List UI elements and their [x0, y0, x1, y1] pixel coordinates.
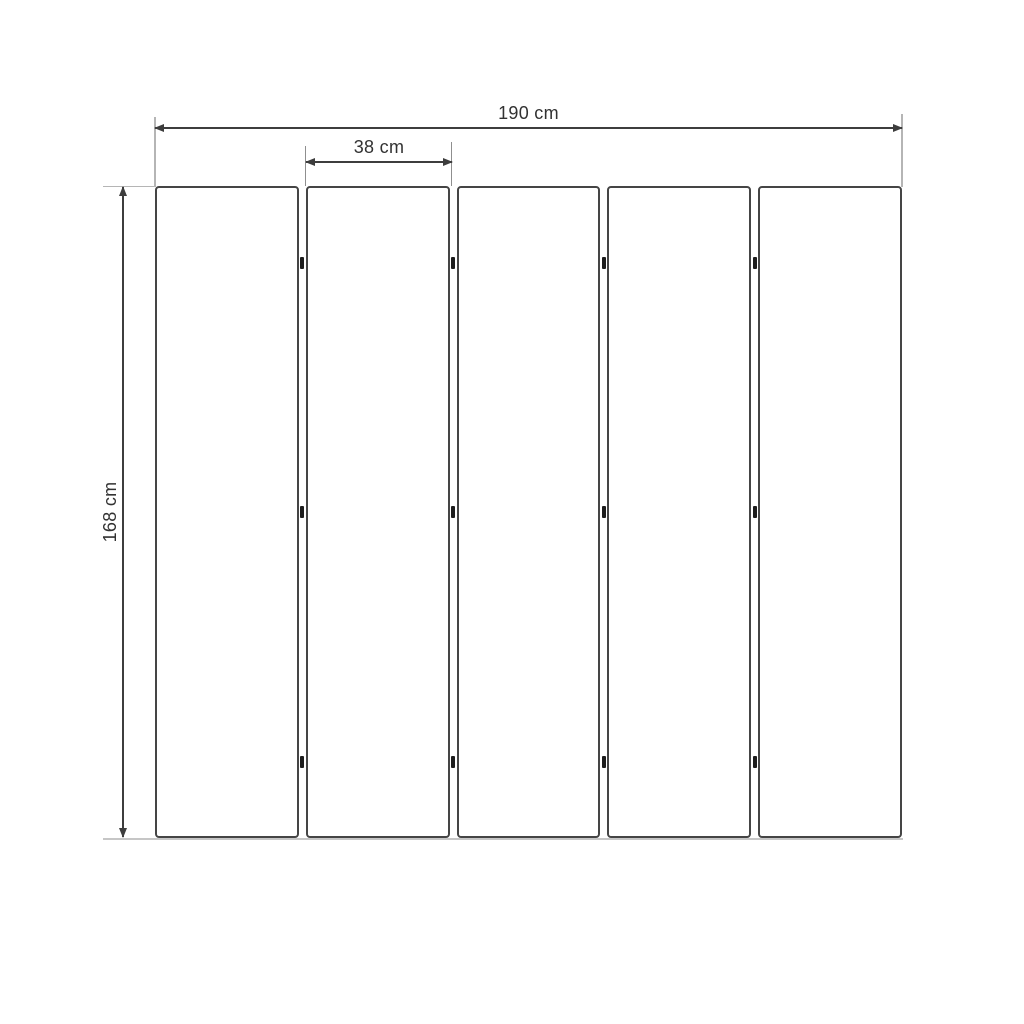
extension-line-height-top	[103, 186, 155, 187]
panel	[607, 186, 751, 838]
hinge-mark	[602, 506, 606, 518]
hinge-mark	[451, 506, 455, 518]
total-width-label: 190 cm	[155, 104, 902, 122]
height-label: 168 cm	[101, 482, 119, 543]
arrowhead-left-icon	[305, 158, 315, 166]
hinge-mark	[451, 756, 455, 768]
floor-extension-line	[103, 838, 903, 840]
hinge-mark	[300, 756, 304, 768]
arrowhead-right-icon	[893, 124, 903, 132]
dimension-line-panel-width	[306, 161, 452, 163]
hinge-mark	[753, 506, 757, 518]
hinge-mark	[753, 756, 757, 768]
arrowhead-left-icon	[154, 124, 164, 132]
panel	[457, 186, 601, 838]
hinge-mark	[300, 506, 304, 518]
hinge-mark	[602, 756, 606, 768]
arrowhead-up-icon	[119, 186, 127, 196]
panels-row	[155, 186, 902, 838]
dimension-line-height	[122, 187, 124, 837]
hinge-mark	[451, 257, 455, 269]
panel	[306, 186, 450, 838]
dimension-line-total-width	[155, 127, 902, 129]
hinge-mark	[753, 257, 757, 269]
hinge-mark	[300, 257, 304, 269]
arrowhead-down-icon	[119, 828, 127, 838]
panel-width-label: 38 cm	[306, 138, 452, 156]
panel	[155, 186, 299, 838]
panel	[758, 186, 902, 838]
dimension-diagram: 190 cm 38 cm 168 cm	[0, 0, 1024, 1024]
hinge-mark	[602, 257, 606, 269]
arrowhead-right-icon	[443, 158, 453, 166]
